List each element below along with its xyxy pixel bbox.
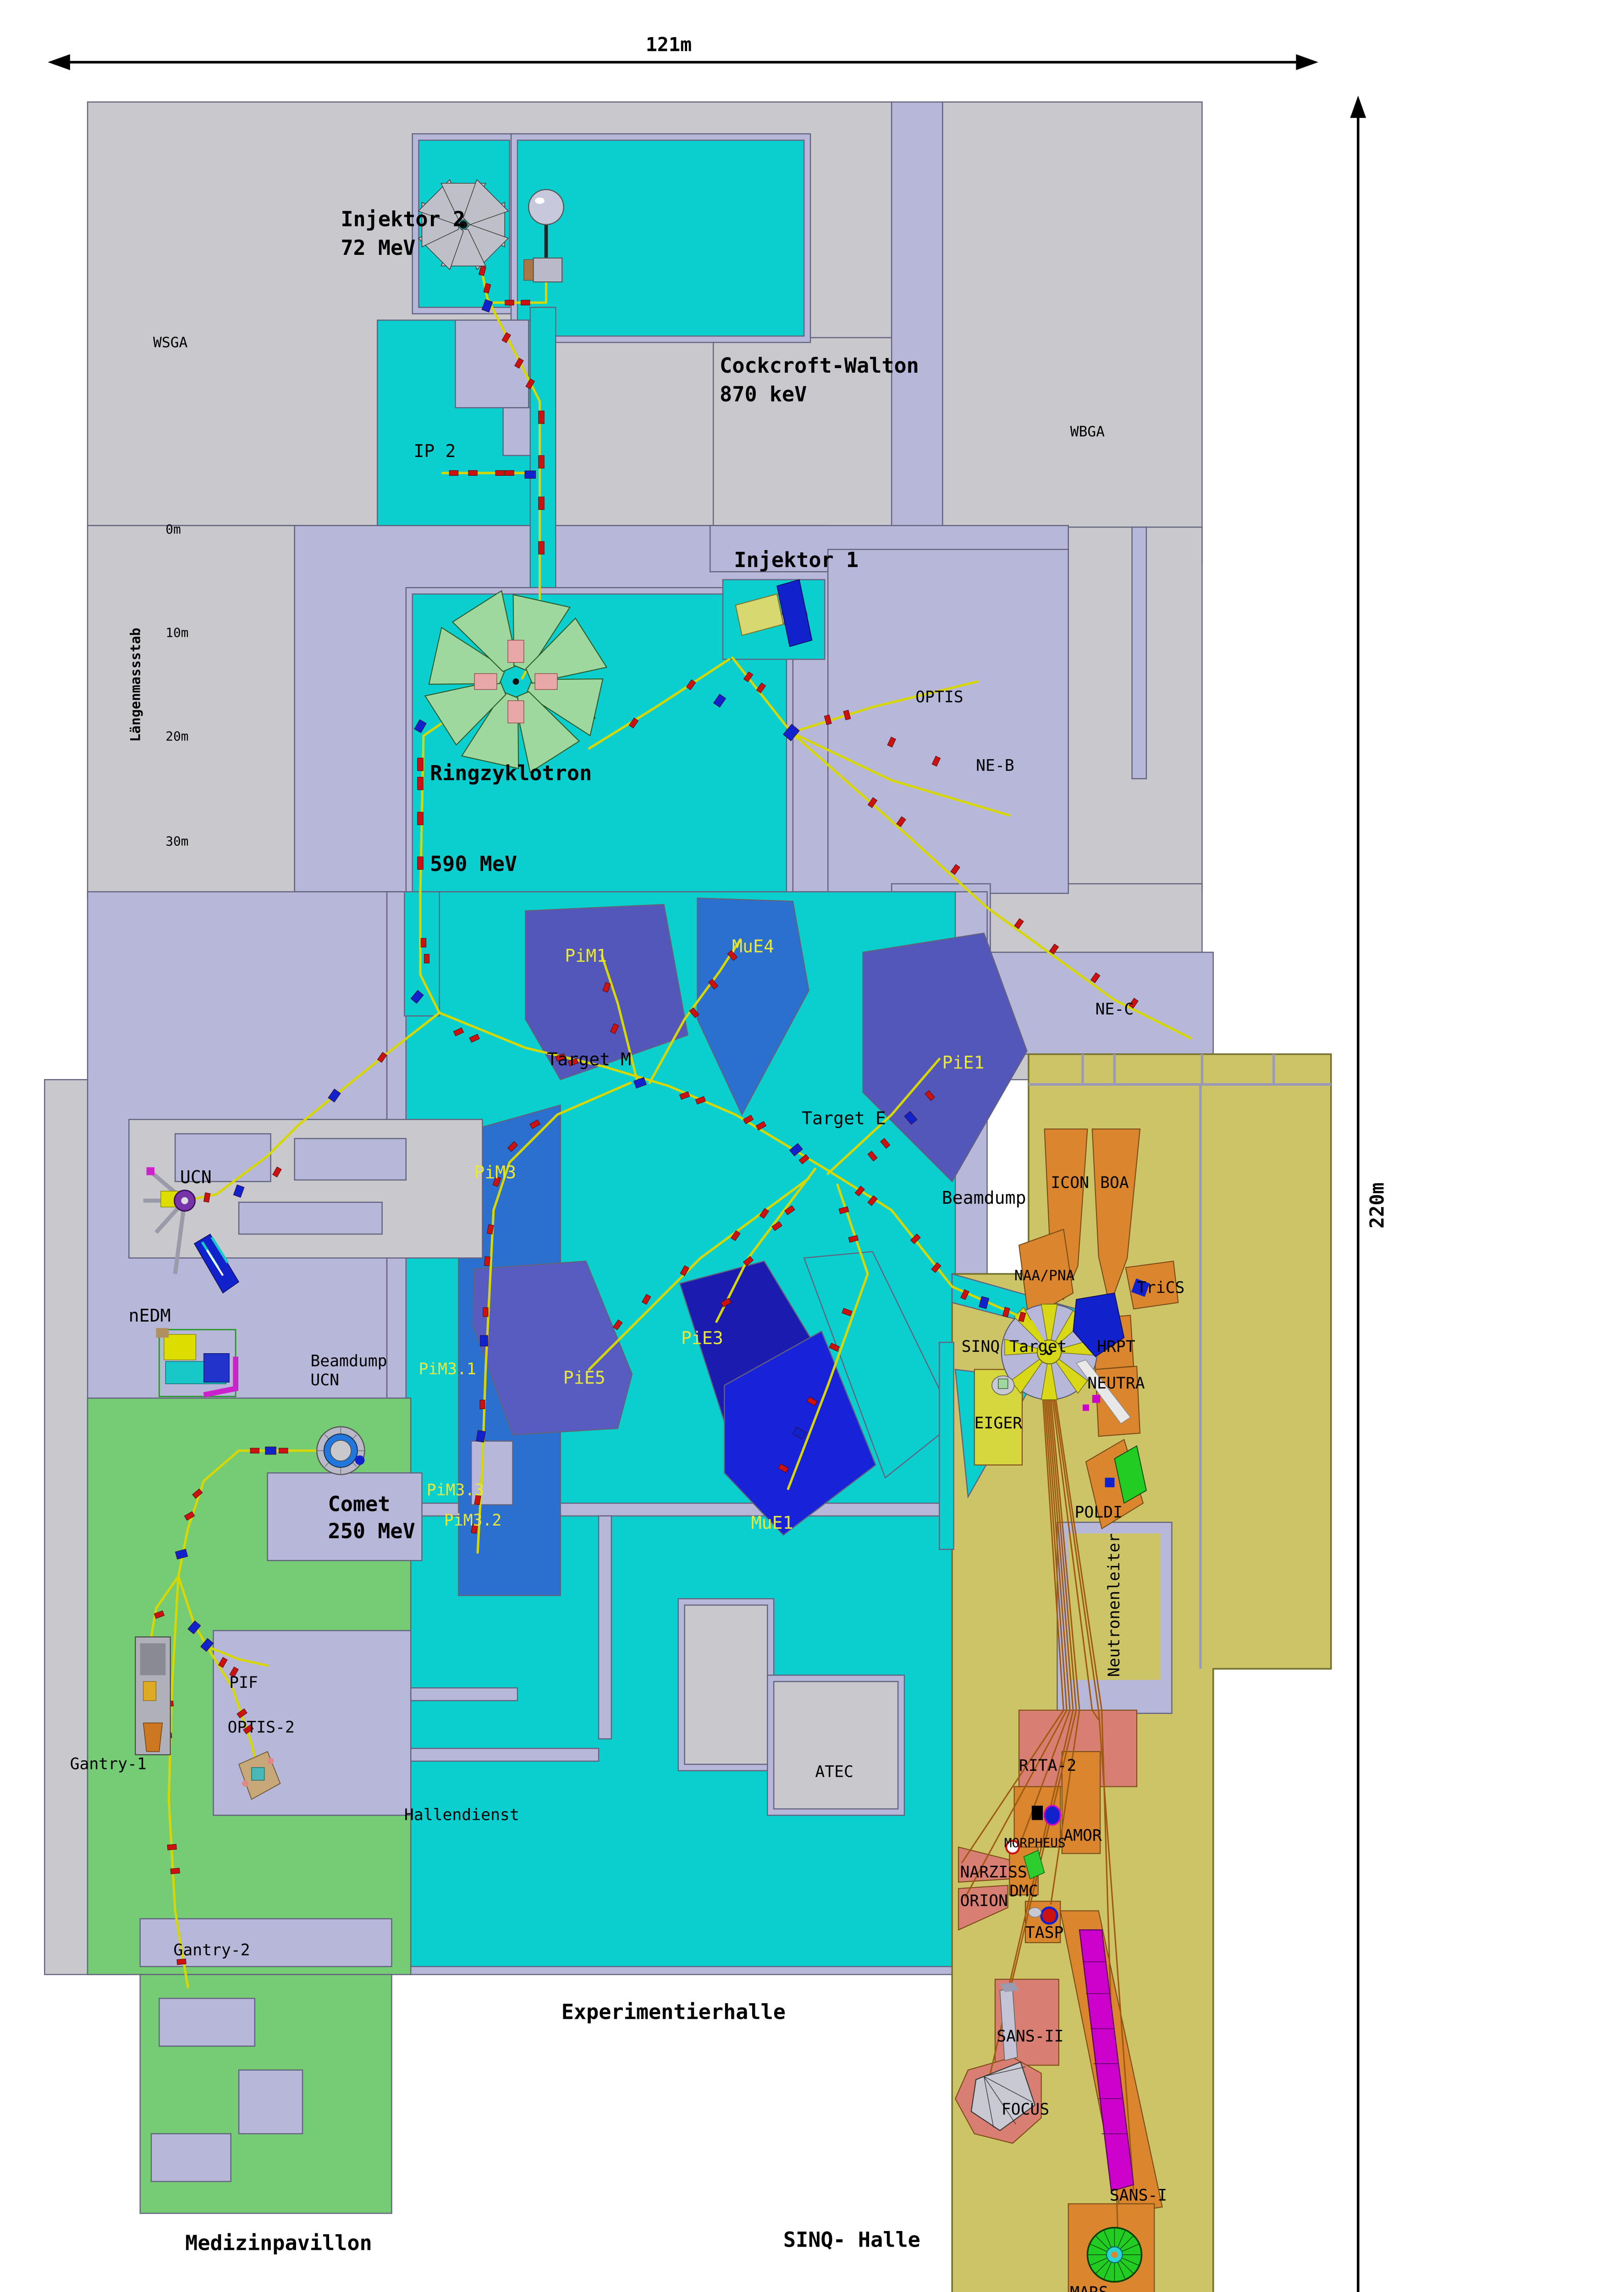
width-scale-arrow [48, 54, 1318, 70]
label-hrpt: HRPT [1097, 1338, 1135, 1356]
label-focus: FOCUS [1002, 2100, 1050, 2119]
tasp-detector [1041, 1907, 1057, 1923]
label-ne-c: NE-C [1096, 1000, 1134, 1019]
label-eiger: EIGER [974, 1414, 1023, 1432]
label-injektor2-energy: 72 MeV [341, 236, 415, 260]
label-laengenmassstab: Längenmassstab [128, 628, 143, 742]
neutra-sample-1 [1092, 1395, 1100, 1403]
room-cockcroft-walton [517, 140, 804, 336]
label-target-e: Target E [802, 1109, 886, 1129]
comet-cyclotron [317, 1427, 364, 1474]
height-scale-arrow [1350, 96, 1366, 2292]
label-pim3: PiM3 [474, 1163, 516, 1183]
label-pim1: PiM1 [565, 946, 607, 966]
morpheus-monochromator [1032, 1806, 1043, 1820]
label-ucn: UCN [180, 1168, 212, 1188]
label-trics: TriCS [1137, 1279, 1185, 1297]
label-tick-20m: 20m [165, 728, 188, 744]
label-beamdump-ucn-2: UCN [310, 1371, 339, 1389]
comet-label-zone [268, 1473, 422, 1560]
room-hall-1 [685, 1605, 768, 1764]
label-pie1: PiE1 [942, 1053, 985, 1073]
label-tick-10m: 10m [165, 625, 188, 640]
label-beamdump: Beamdump [942, 1188, 1026, 1208]
label-target-m: Target M [547, 1050, 631, 1070]
label-medizinpavillon: Medizinpavillon [185, 2231, 372, 2255]
label-hallendienst: Hallendienst [404, 1806, 519, 1824]
label-injektor1: Injektor 1 [734, 548, 859, 572]
label-sans-i: SANS-I [1110, 2187, 1167, 2205]
label-icon: ICON [1051, 1174, 1089, 1192]
label-mue4: MuE4 [732, 937, 774, 957]
label-sinq-target: SINQ Target [962, 1338, 1067, 1356]
label-tasp: TASP [1025, 1923, 1064, 1942]
label-wbga: WBGA [1070, 424, 1105, 440]
label-neutra: NEUTRA [1087, 1374, 1145, 1393]
label-scale-121m: 121m [646, 33, 692, 55]
label-orion: ORION [960, 1892, 1008, 1910]
building-wsga [88, 525, 295, 898]
label-experimentierhalle: Experimentierhalle [562, 2000, 786, 2024]
label-cockcroft-energy: 870 keV [720, 382, 807, 407]
building-wbga [942, 102, 1202, 564]
label-ringzyklotron: Ringzyklotron [430, 761, 592, 785]
label-pim3-3: PiM3.3 [427, 1481, 484, 1499]
label-beamdump-ucn-1: Beamdump [310, 1352, 387, 1370]
label-pie3: PiE3 [681, 1328, 723, 1349]
label-cockcroft: Cockcroft-Walton [720, 353, 919, 378]
wall-right [1132, 527, 1146, 779]
label-mars: MARS [1070, 2284, 1108, 2292]
label-tick-30m: 30m [165, 834, 188, 849]
label-ip2: IP 2 [413, 441, 456, 462]
label-poldi: POLDI [1074, 1503, 1123, 1521]
label-pim3-1: PiM3.1 [418, 1360, 476, 1378]
morpheus-detector [1045, 1806, 1061, 1825]
label-comet: Comet [328, 1492, 391, 1516]
label-pif: PIF [229, 1674, 258, 1692]
label-tick-0m: 0m [165, 522, 181, 537]
label-sinq-halle: SINQ- Halle [783, 2227, 920, 2252]
label-ne-b: NE-B [976, 756, 1014, 775]
label-optis-2: OPTIS-2 [227, 1718, 294, 1736]
label-atec: ATEC [815, 1763, 853, 1781]
label-naa-pna: NAA/PNA [1014, 1267, 1075, 1284]
label-neutronenleiter: Neutronenleiter [1105, 1533, 1123, 1677]
label-morpheus: MORPHEUS [1004, 1835, 1066, 1850]
label-rita-2: RITA-2 [1019, 1757, 1076, 1775]
label-mue1: MuE1 [751, 1513, 793, 1533]
label-amor: AMOR [1063, 1827, 1102, 1845]
label-narziss: NARZISS [960, 1863, 1027, 1881]
label-pim3-2: PiM3.2 [444, 1511, 501, 1530]
label-boa: BOA [1100, 1174, 1129, 1192]
label-sans-ii: SANS-II [996, 2027, 1063, 2045]
label-gantry-1: Gantry-1 [70, 1755, 147, 1773]
label-dmc: DMC [1009, 1882, 1038, 1901]
label-ring-energy: 590 MeV [430, 852, 517, 876]
room-atec [774, 1681, 898, 1809]
label-injektor2: Injektor 2 [341, 207, 465, 231]
label-pie5: PiE5 [563, 1368, 606, 1388]
gantry1-graphic [135, 1637, 170, 1755]
label-gantry-2: Gantry-2 [173, 1941, 250, 1960]
label-optis: OPTIS [915, 688, 963, 706]
facility-map: 121m220mWSGAWBGAInjektor 272 MeVCockcrof… [0, 0, 1624, 2292]
label-scale-220m: 220m [1365, 1182, 1388, 1228]
neutra-sample-2 [1083, 1405, 1089, 1411]
label-wsga: WSGA [153, 334, 187, 351]
facility-map-page: { "map_title_implicit": "PSI Accelerator… [0, 0, 1624, 2292]
label-comet-energy: 250 MeV [328, 1519, 415, 1543]
label-nedm: nEDM [129, 1306, 171, 1326]
